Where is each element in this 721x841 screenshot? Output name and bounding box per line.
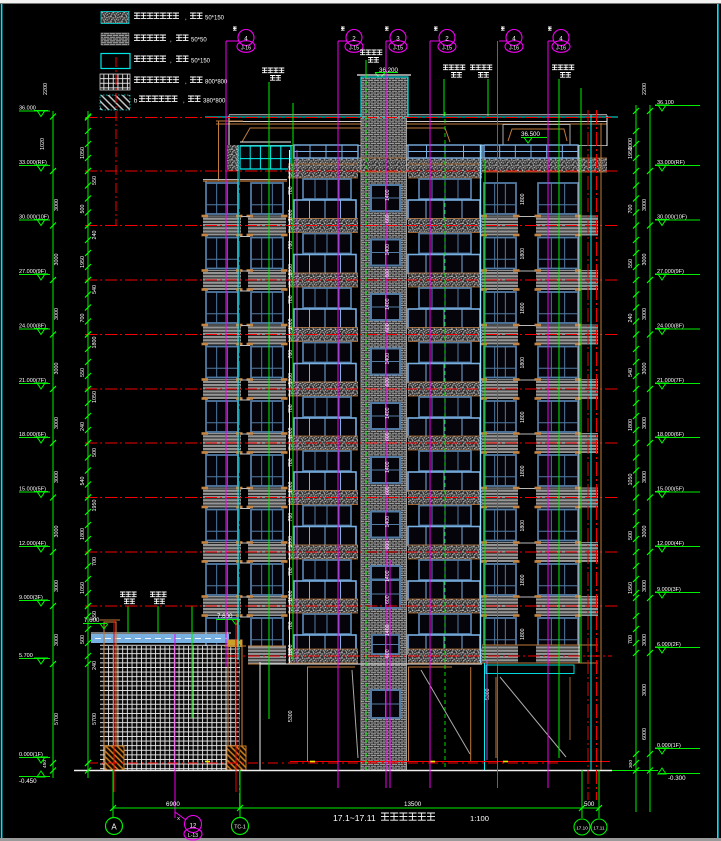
- svg-text:1800: 1800: [520, 357, 526, 369]
- svg-text:1050: 1050: [80, 582, 86, 594]
- svg-text:240: 240: [628, 314, 634, 323]
- svg-text:1800: 1800: [92, 337, 98, 349]
- svg-text:540: 540: [628, 368, 634, 377]
- svg-text:800*800: 800*800: [205, 80, 228, 86]
- svg-text:1800: 1800: [288, 264, 294, 276]
- svg-text:600: 600: [385, 269, 391, 278]
- svg-text:1400: 1400: [385, 189, 391, 201]
- svg-text:300: 300: [628, 760, 634, 768]
- svg-text:600: 600: [385, 378, 391, 387]
- svg-text:550: 550: [628, 259, 634, 268]
- svg-text:5700: 5700: [54, 713, 60, 725]
- svg-text:1400: 1400: [385, 624, 391, 636]
- svg-text:6900: 6900: [166, 801, 180, 808]
- svg-text:1800: 1800: [288, 536, 294, 548]
- svg-text:1:100: 1:100: [470, 814, 489, 823]
- svg-text:4: 4: [559, 36, 563, 43]
- svg-text:780: 780: [288, 567, 294, 576]
- svg-text:1800: 1800: [288, 644, 294, 656]
- svg-text:1400: 1400: [385, 407, 391, 419]
- svg-text:240: 240: [80, 422, 86, 431]
- svg-text:17.11: 17.11: [593, 826, 605, 831]
- svg-text:550: 550: [92, 176, 98, 185]
- svg-text:500: 500: [92, 448, 98, 457]
- svg-text:500: 500: [80, 635, 86, 644]
- svg-text:3000: 3000: [54, 363, 60, 375]
- svg-text:3000: 3000: [642, 417, 648, 429]
- svg-text:600: 600: [385, 323, 391, 332]
- svg-text:1400: 1400: [385, 516, 391, 528]
- svg-text:1400: 1400: [385, 244, 391, 256]
- svg-text:1950: 1950: [80, 256, 86, 268]
- svg-text:J-16: J-16: [556, 46, 566, 52]
- svg-text:600: 600: [385, 432, 391, 441]
- svg-text:1000: 1000: [628, 138, 634, 150]
- svg-text:780: 780: [288, 295, 294, 304]
- svg-text:5700: 5700: [92, 713, 98, 725]
- svg-text:6000: 6000: [642, 728, 648, 740]
- svg-text:3000: 3000: [54, 634, 60, 646]
- svg-text:J-16: J-16: [241, 46, 251, 52]
- svg-text:240: 240: [92, 231, 98, 240]
- svg-text:50*50: 50*50: [191, 38, 207, 44]
- svg-text:3000: 3000: [642, 634, 648, 646]
- svg-text:50*150: 50*150: [191, 59, 211, 65]
- svg-text:1800: 1800: [520, 193, 526, 205]
- svg-text:J-16: J-16: [509, 46, 519, 52]
- svg-text:550: 550: [80, 368, 86, 377]
- svg-text:3000: 3000: [642, 471, 648, 483]
- svg-text:J-15: J-15: [393, 46, 403, 52]
- svg-text:3000: 3000: [54, 199, 60, 211]
- svg-text:700: 700: [80, 314, 86, 323]
- svg-text:12: 12: [190, 824, 197, 830]
- svg-text:3000: 3000: [54, 471, 60, 483]
- svg-text:700: 700: [628, 205, 634, 214]
- svg-text:1800: 1800: [288, 209, 294, 221]
- svg-text:2: 2: [445, 36, 449, 43]
- svg-text:1800: 1800: [520, 520, 526, 532]
- svg-text:600: 600: [385, 649, 391, 658]
- svg-text:1800: 1800: [520, 465, 526, 477]
- svg-text:700: 700: [92, 557, 98, 566]
- svg-text:1800: 1800: [520, 302, 526, 314]
- svg-text:780: 780: [288, 458, 294, 467]
- svg-text:4: 4: [244, 36, 248, 43]
- svg-text:600: 600: [385, 541, 391, 550]
- svg-text:3000: 3000: [54, 308, 60, 320]
- svg-text:1800: 1800: [520, 248, 526, 260]
- svg-text:540: 540: [92, 285, 98, 294]
- svg-text:380*800: 380*800: [203, 99, 226, 105]
- svg-text:540: 540: [80, 477, 86, 486]
- svg-text:A: A: [111, 823, 117, 832]
- svg-text:1950: 1950: [92, 500, 98, 512]
- svg-text:780: 780: [288, 350, 294, 359]
- svg-text:600: 600: [385, 214, 391, 223]
- svg-text:1800: 1800: [520, 574, 526, 586]
- svg-text:5.700: 5.700: [19, 653, 33, 659]
- svg-text:1800: 1800: [628, 419, 634, 431]
- svg-text:550: 550: [92, 611, 98, 620]
- svg-text:3000: 3000: [642, 308, 648, 320]
- svg-text:1400: 1400: [385, 353, 391, 365]
- svg-text:X: X: [177, 816, 180, 821]
- svg-text:L-13: L-13: [188, 833, 198, 839]
- svg-text:1400: 1400: [385, 461, 391, 473]
- svg-text:1800: 1800: [520, 628, 526, 640]
- svg-text:J-15: J-15: [349, 46, 359, 52]
- svg-text:1800: 1800: [80, 528, 86, 540]
- svg-text:3: 3: [396, 36, 400, 43]
- svg-text:5300: 5300: [485, 688, 491, 700]
- svg-text:3000: 3000: [642, 684, 648, 696]
- svg-text:780: 780: [288, 513, 294, 522]
- svg-text:3000: 3000: [54, 417, 60, 429]
- svg-text:13500: 13500: [404, 801, 422, 808]
- svg-text:1800: 1800: [288, 373, 294, 385]
- svg-text:500: 500: [80, 205, 86, 214]
- svg-text:500: 500: [628, 531, 634, 540]
- svg-text:17.1~17.11: 17.1~17.11: [333, 813, 376, 823]
- svg-text:1800: 1800: [288, 318, 294, 330]
- svg-text:17.10: 17.10: [576, 826, 588, 831]
- svg-text:36.000: 36.000: [19, 106, 36, 112]
- svg-text:1400: 1400: [385, 570, 391, 582]
- svg-text:-0.300: -0.300: [668, 775, 686, 782]
- svg-text:2200: 2200: [43, 83, 49, 95]
- svg-text:36.500: 36.500: [521, 131, 540, 138]
- svg-text:1400: 1400: [385, 298, 391, 310]
- svg-text:3000: 3000: [642, 526, 648, 538]
- svg-text:1050: 1050: [92, 391, 98, 403]
- svg-text:2: 2: [352, 36, 356, 43]
- svg-text:3000: 3000: [642, 580, 648, 592]
- svg-text:3000: 3000: [54, 526, 60, 538]
- svg-text:3000: 3000: [54, 580, 60, 592]
- svg-text:1800: 1800: [520, 411, 526, 423]
- svg-text:2200: 2200: [642, 83, 648, 95]
- svg-text:3000: 3000: [642, 199, 648, 211]
- svg-text:J-15: J-15: [442, 46, 452, 52]
- svg-text:600: 600: [385, 486, 391, 495]
- svg-text:1050: 1050: [80, 147, 86, 159]
- svg-text:600: 600: [385, 595, 391, 604]
- svg-text:TC-1: TC-1: [234, 825, 246, 831]
- svg-text:1950: 1950: [628, 582, 634, 594]
- svg-text:1800: 1800: [288, 427, 294, 439]
- svg-text:500: 500: [584, 801, 595, 808]
- svg-text:3000: 3000: [642, 254, 648, 266]
- svg-text:780: 780: [288, 186, 294, 195]
- svg-text:780: 780: [288, 404, 294, 413]
- svg-text:4: 4: [512, 36, 516, 43]
- svg-text:3000: 3000: [642, 363, 648, 375]
- svg-text:700: 700: [628, 635, 634, 644]
- svg-text:780: 780: [288, 621, 294, 630]
- svg-text:450: 450: [42, 760, 48, 768]
- svg-text:1800: 1800: [288, 590, 294, 602]
- svg-text:5300: 5300: [288, 710, 294, 722]
- svg-text:3000: 3000: [54, 254, 60, 266]
- svg-text:-0.450: -0.450: [19, 778, 37, 785]
- svg-text:1020: 1020: [40, 138, 46, 150]
- svg-text:1050: 1050: [628, 474, 634, 486]
- svg-text:50*150: 50*150: [205, 16, 225, 22]
- svg-text:240: 240: [92, 661, 98, 670]
- svg-text:7.600: 7.600: [217, 613, 233, 620]
- svg-text:780: 780: [288, 241, 294, 250]
- svg-text:1800: 1800: [288, 481, 294, 493]
